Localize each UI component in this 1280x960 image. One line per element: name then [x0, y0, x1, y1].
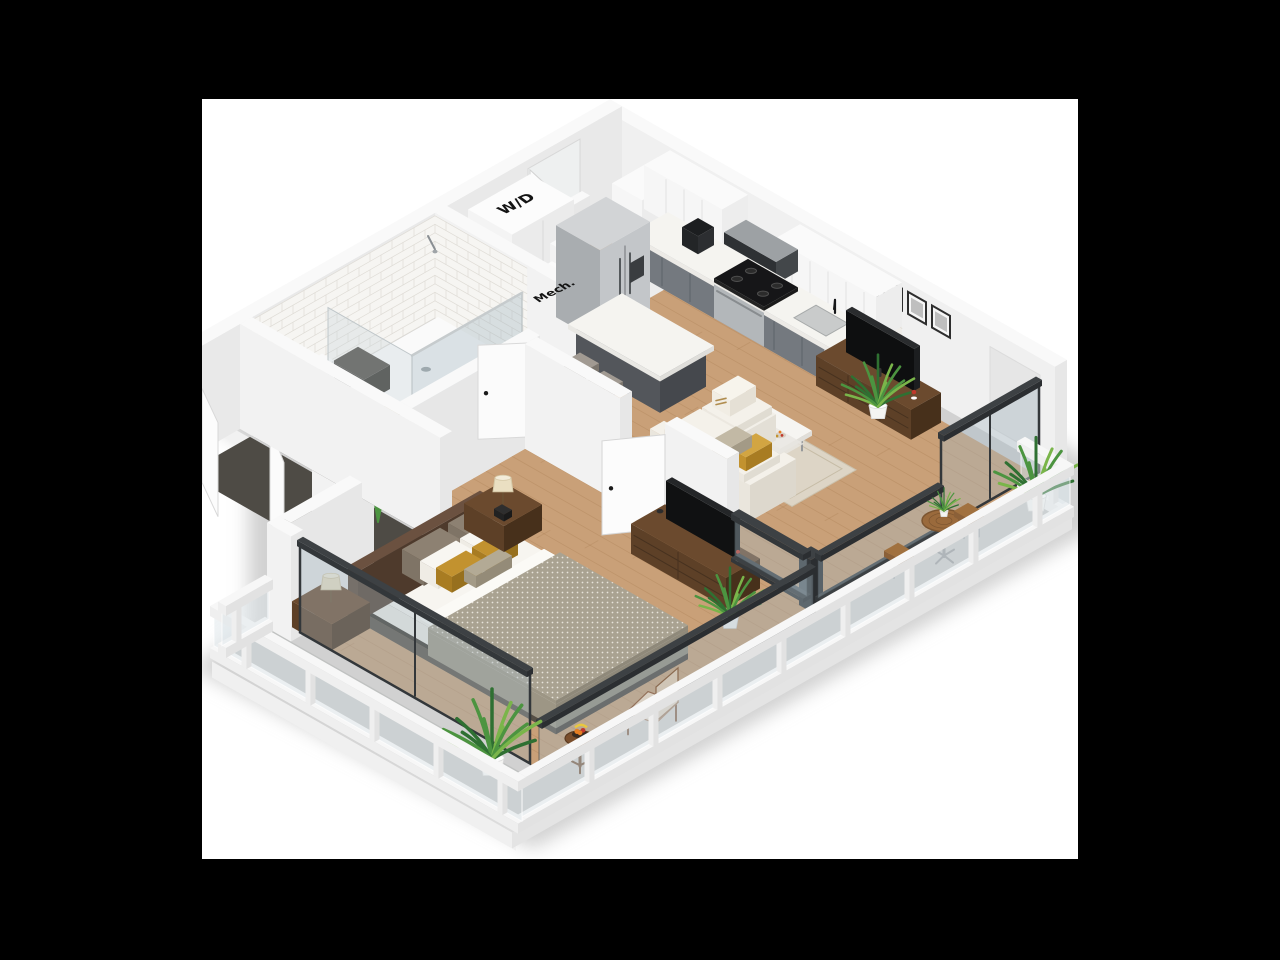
rail-post-side — [237, 606, 242, 643]
burner — [758, 291, 769, 296]
vase — [911, 396, 917, 399]
rail-post-side — [782, 637, 787, 674]
floorplan-page: W/DMech. — [0, 0, 1280, 960]
burner — [772, 283, 783, 288]
rail-post-side — [846, 600, 851, 637]
tv-side — [914, 346, 920, 391]
burner — [732, 276, 743, 281]
rail-post-side — [718, 673, 723, 710]
shower-head — [433, 250, 438, 254]
decor-bowl — [657, 509, 664, 513]
snack — [779, 431, 782, 434]
rail-post-side — [654, 710, 659, 747]
flowers — [912, 390, 916, 394]
rail-post-face — [434, 742, 439, 779]
door-handle — [484, 391, 488, 395]
rail-post-face — [370, 705, 375, 742]
line — [834, 300, 835, 309]
rail-post-side — [590, 746, 595, 783]
rail-post-side — [910, 564, 915, 601]
apartment-3d-floorplan: W/DMech. — [0, 0, 1280, 960]
rail-post-face — [498, 778, 503, 815]
snack — [781, 434, 784, 437]
snack — [776, 435, 779, 438]
door-handle — [609, 486, 613, 490]
lamp-top — [495, 475, 511, 480]
fruit — [578, 730, 583, 735]
rail-post-side — [1038, 491, 1043, 528]
rail-post-side — [974, 527, 979, 564]
rail-post-face — [306, 669, 311, 706]
burner — [746, 268, 757, 273]
